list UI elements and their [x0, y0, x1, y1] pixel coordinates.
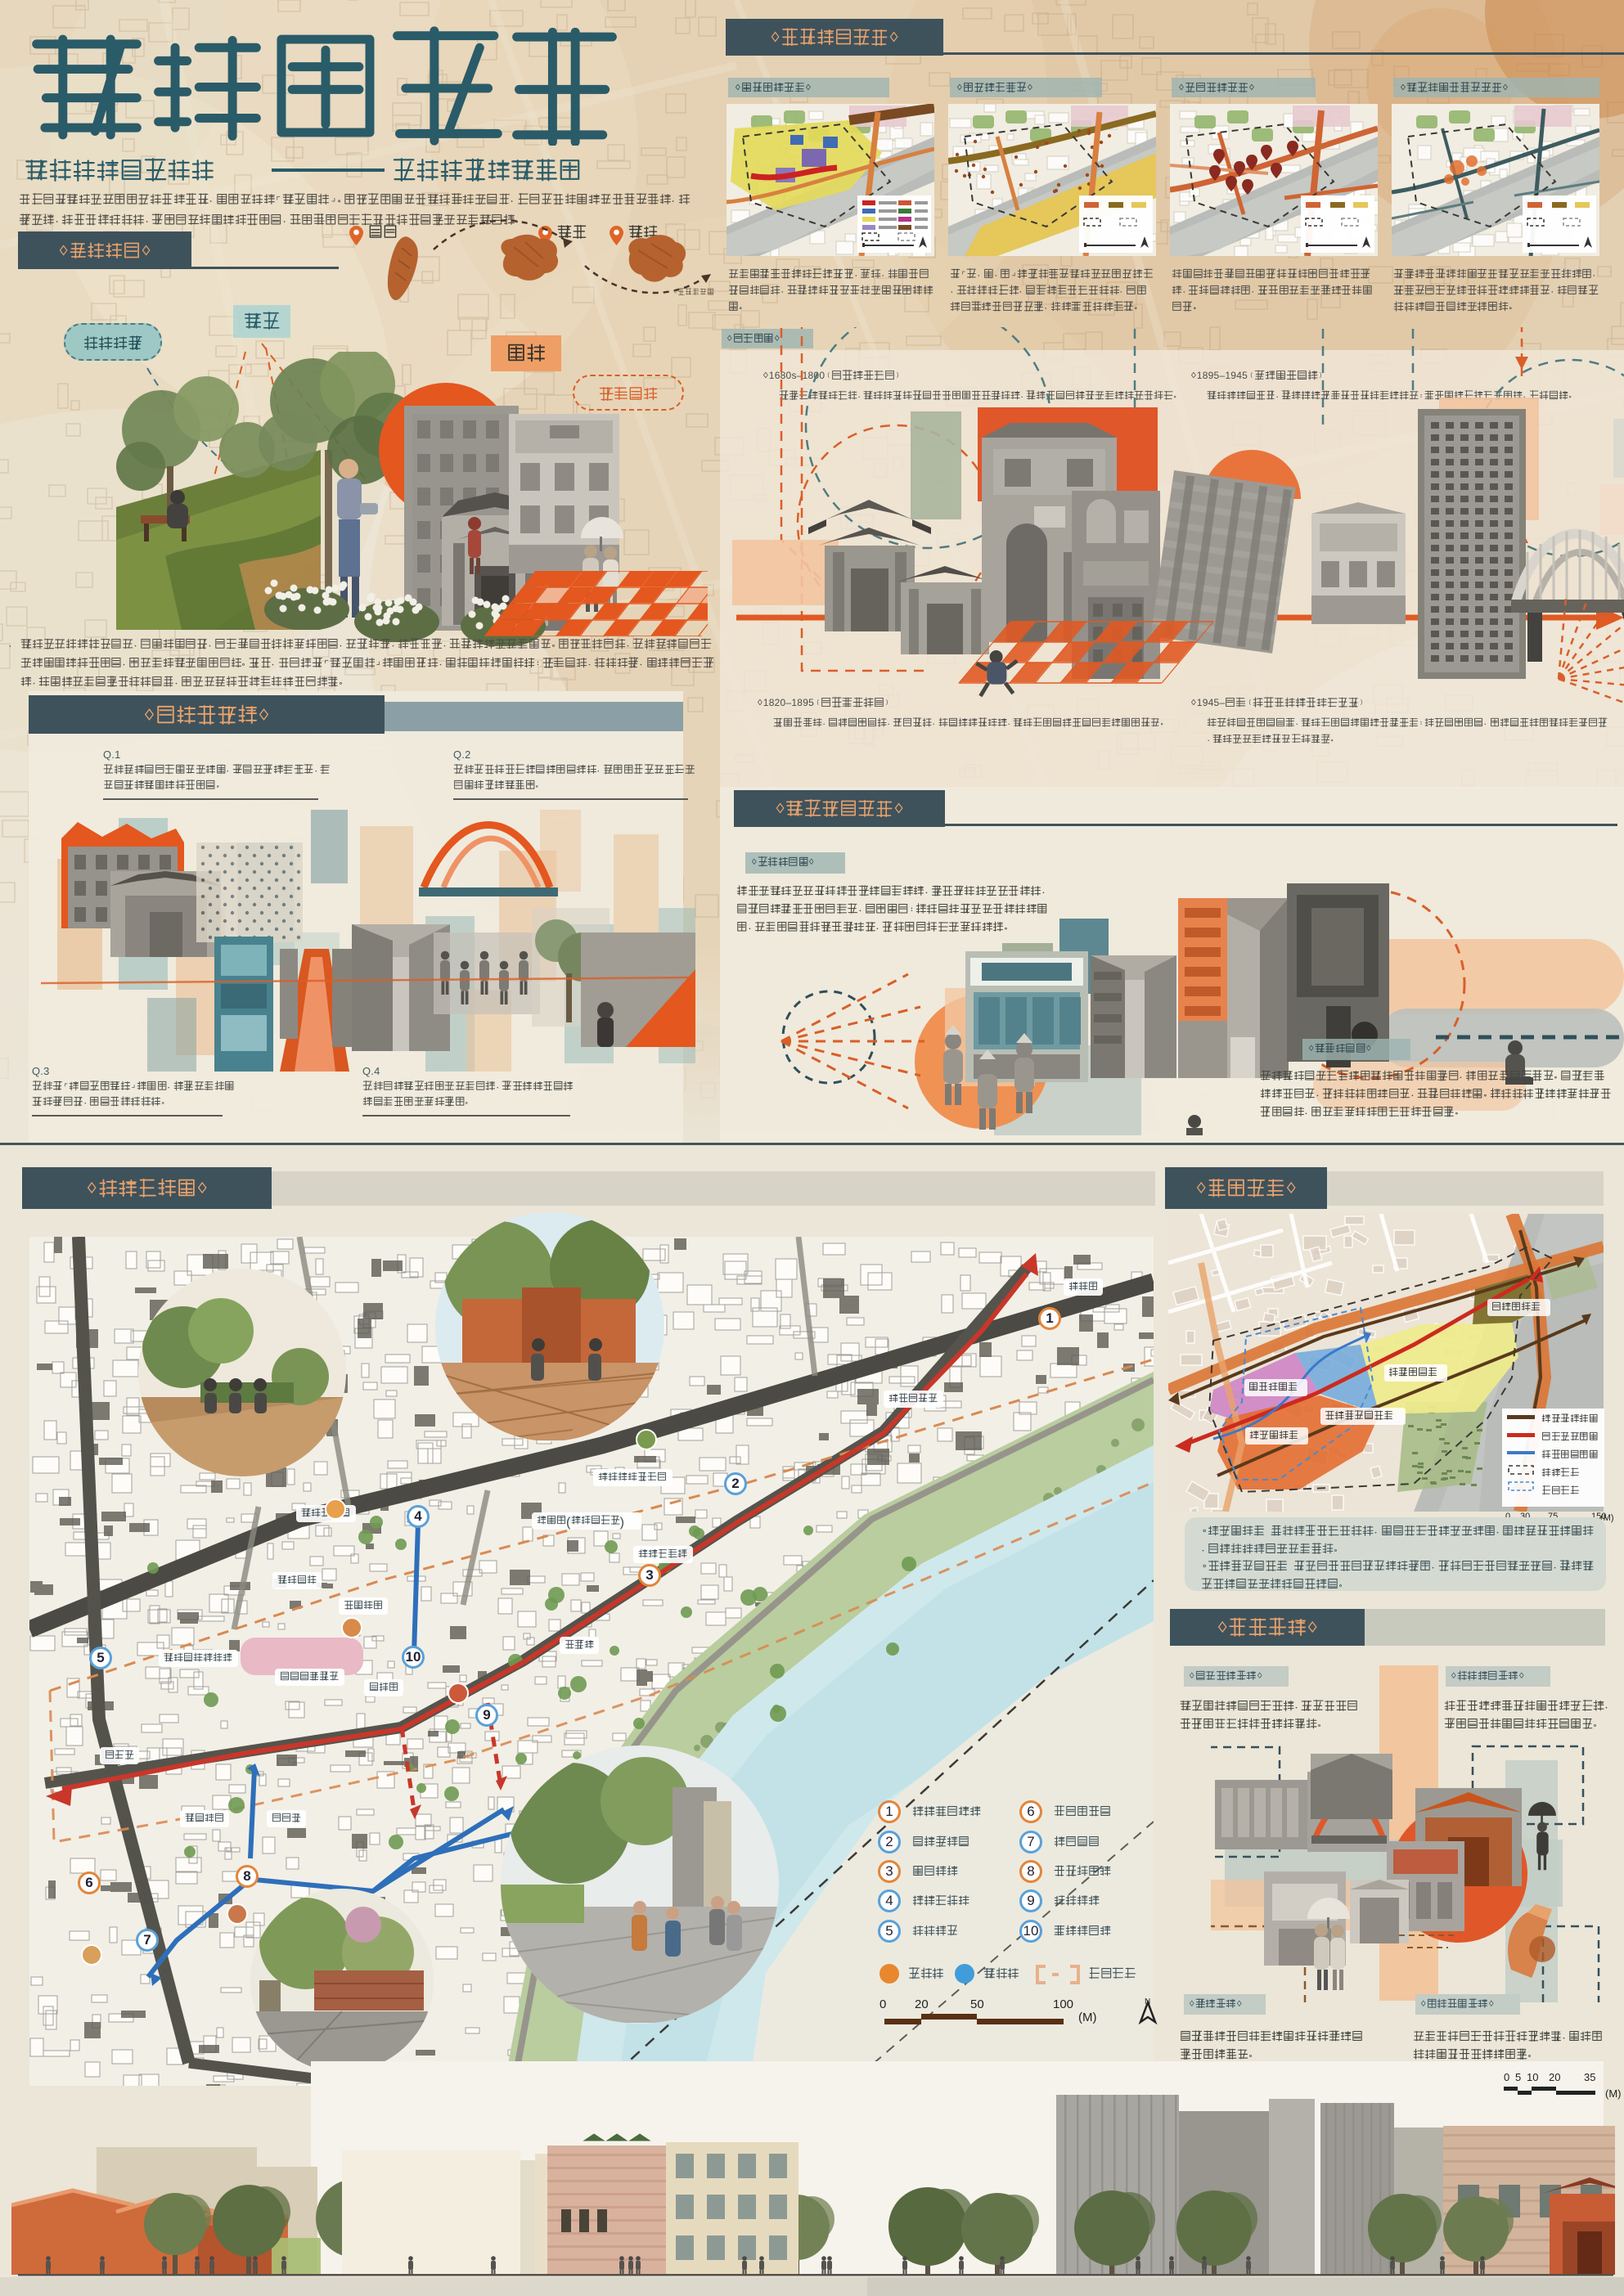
svg-text:N: N	[1145, 1997, 1150, 2006]
